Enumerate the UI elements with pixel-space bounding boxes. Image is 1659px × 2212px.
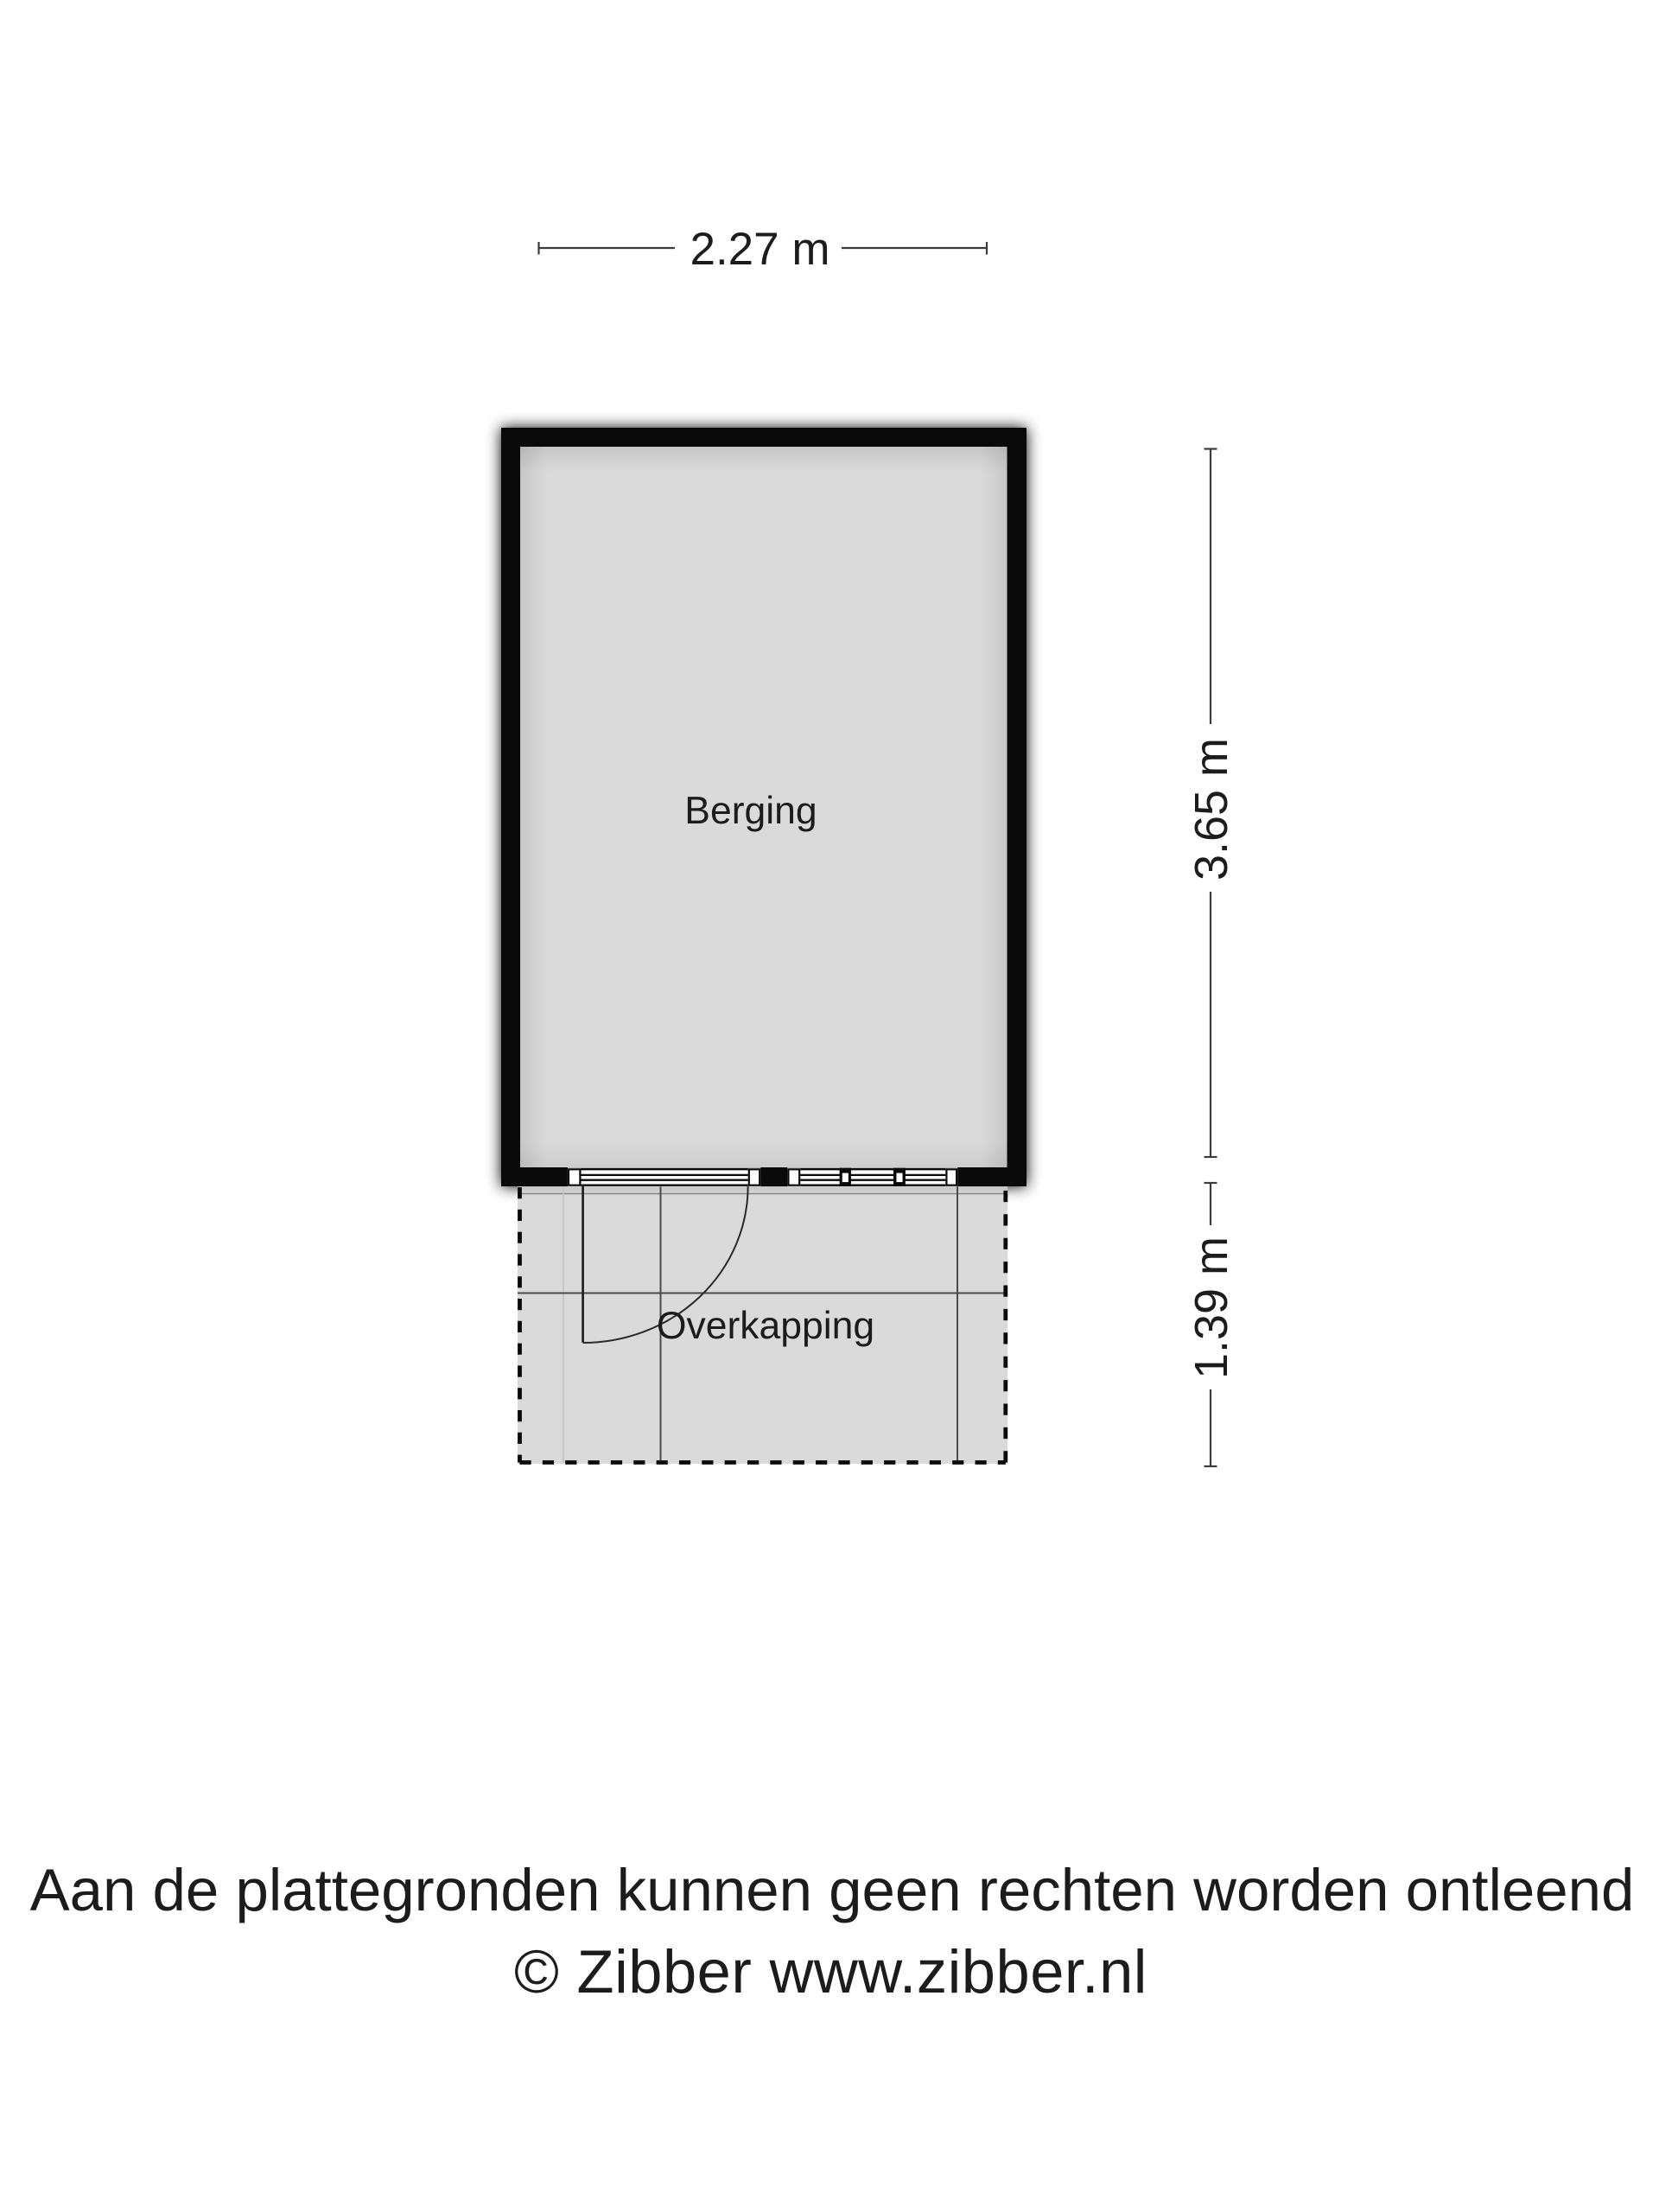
svg-text:2.27 m: 2.27 m [690, 224, 829, 275]
svg-text:© Zibber www.zibber.nl: © Zibber www.zibber.nl [514, 1937, 1147, 2005]
svg-text:3.65 m: 3.65 m [1185, 738, 1237, 880]
svg-text:Berging: Berging [684, 790, 817, 832]
svg-text:Overkapping: Overkapping [657, 1305, 874, 1347]
svg-text:Aan de plattegronden kunnen ge: Aan de plattegronden kunnen geen rechten… [30, 1857, 1635, 1923]
svg-text:1.39 m: 1.39 m [1185, 1236, 1237, 1379]
